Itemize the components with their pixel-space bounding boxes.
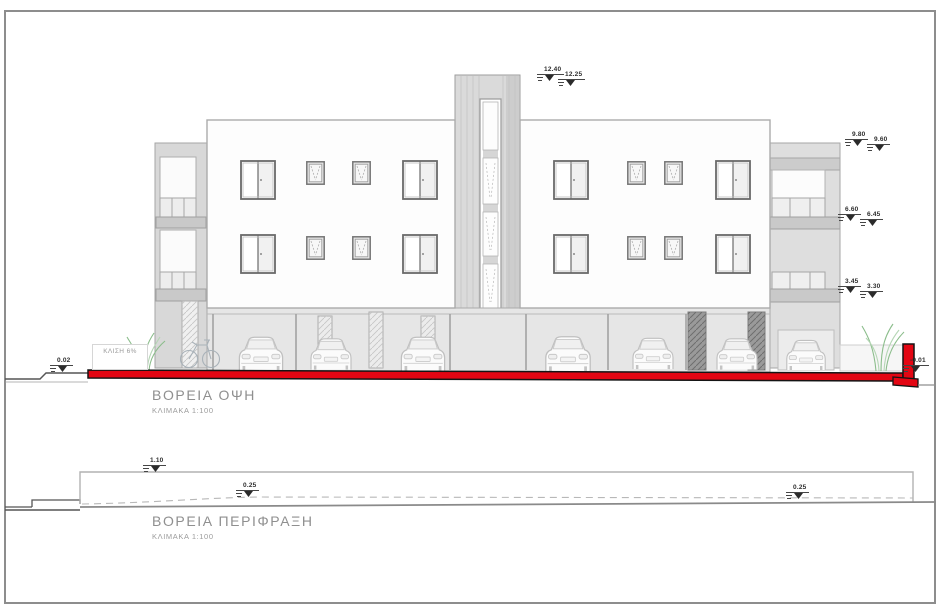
- right-background-building: [770, 143, 840, 370]
- dim-marker-fence-right: 0.25: [786, 484, 812, 501]
- level-marker-ground-right: -0.01: [903, 357, 929, 374]
- drawing-sheet: ΚΛΙΣΗ 6% 12.40 12.25 9.80 9.60 6.60 6.45: [0, 0, 940, 606]
- level-symbol-icon: [50, 366, 76, 374]
- level-value: 3.45: [838, 278, 861, 287]
- level-value: -0.01: [903, 357, 929, 366]
- level-value: 12.25: [558, 71, 585, 80]
- dim-marker-fence-mid: 0.25: [236, 482, 262, 499]
- level-marker-second-b: 6.45: [860, 211, 886, 228]
- slope-label-box: ΚΛΙΣΗ 6%: [92, 344, 148, 370]
- level-marker-ground-left: 0.02: [50, 357, 76, 374]
- level-symbol-icon: [860, 220, 886, 228]
- level-symbol-icon: [786, 493, 812, 501]
- main-view-title: ΒΟΡΕΙΑ ΟΨΗ: [152, 388, 256, 403]
- fence-ground-line: [80, 502, 936, 507]
- left-wing: [207, 120, 455, 308]
- level-symbol-icon: [903, 366, 929, 374]
- main-view-title-block: ΒΟΡΕΙΑ ΟΨΗ ΚΛΙΜΑΚΑ 1:100: [152, 388, 256, 415]
- level-marker-roof-b: 9.60: [867, 136, 893, 153]
- fence-view-title-block: ΒΟΡΕΙΑ ΠΕΡΙΦΡΑΞΗ ΚΛΙΜΑΚΑ 1:100: [152, 514, 314, 541]
- dim-value: 1.10: [143, 457, 166, 466]
- fence-view-scale: ΚΛΙΜΑΚΑ 1:100: [152, 532, 314, 541]
- level-marker-tower-b: 12.25: [558, 71, 585, 88]
- left-background-building: [155, 143, 207, 368]
- slope-label: ΚΛΙΣΗ 6%: [103, 348, 137, 355]
- ground-line-red: [88, 370, 903, 381]
- level-value: 9.80: [845, 131, 868, 140]
- level-value: 6.60: [838, 206, 861, 215]
- level-symbol-icon: [143, 466, 169, 474]
- right-wing: [520, 120, 770, 308]
- elevation-drawing: [0, 0, 940, 606]
- level-symbol-icon: [558, 80, 584, 88]
- level-value: 0.02: [50, 357, 73, 366]
- dim-value: 0.25: [786, 484, 809, 493]
- level-value: 3.30: [860, 283, 883, 292]
- dim-marker-fence-height: 1.10: [143, 457, 169, 474]
- level-marker-first-b: 3.30: [860, 283, 886, 300]
- level-symbol-icon: [860, 292, 886, 300]
- level-symbol-icon: [867, 145, 893, 153]
- garage-door-panel: [688, 312, 706, 370]
- fence-view-title: ΒΟΡΕΙΑ ΠΕΡΙΦΡΑΞΗ: [152, 514, 314, 529]
- level-symbol-icon: [236, 491, 262, 499]
- level-value: 6.45: [860, 211, 883, 220]
- dim-value: 0.25: [236, 482, 259, 491]
- main-view-scale: ΚΛΙΜΑΚΑ 1:100: [152, 406, 256, 415]
- ground-floor-parking: [207, 308, 770, 372]
- level-value: 9.60: [867, 136, 890, 145]
